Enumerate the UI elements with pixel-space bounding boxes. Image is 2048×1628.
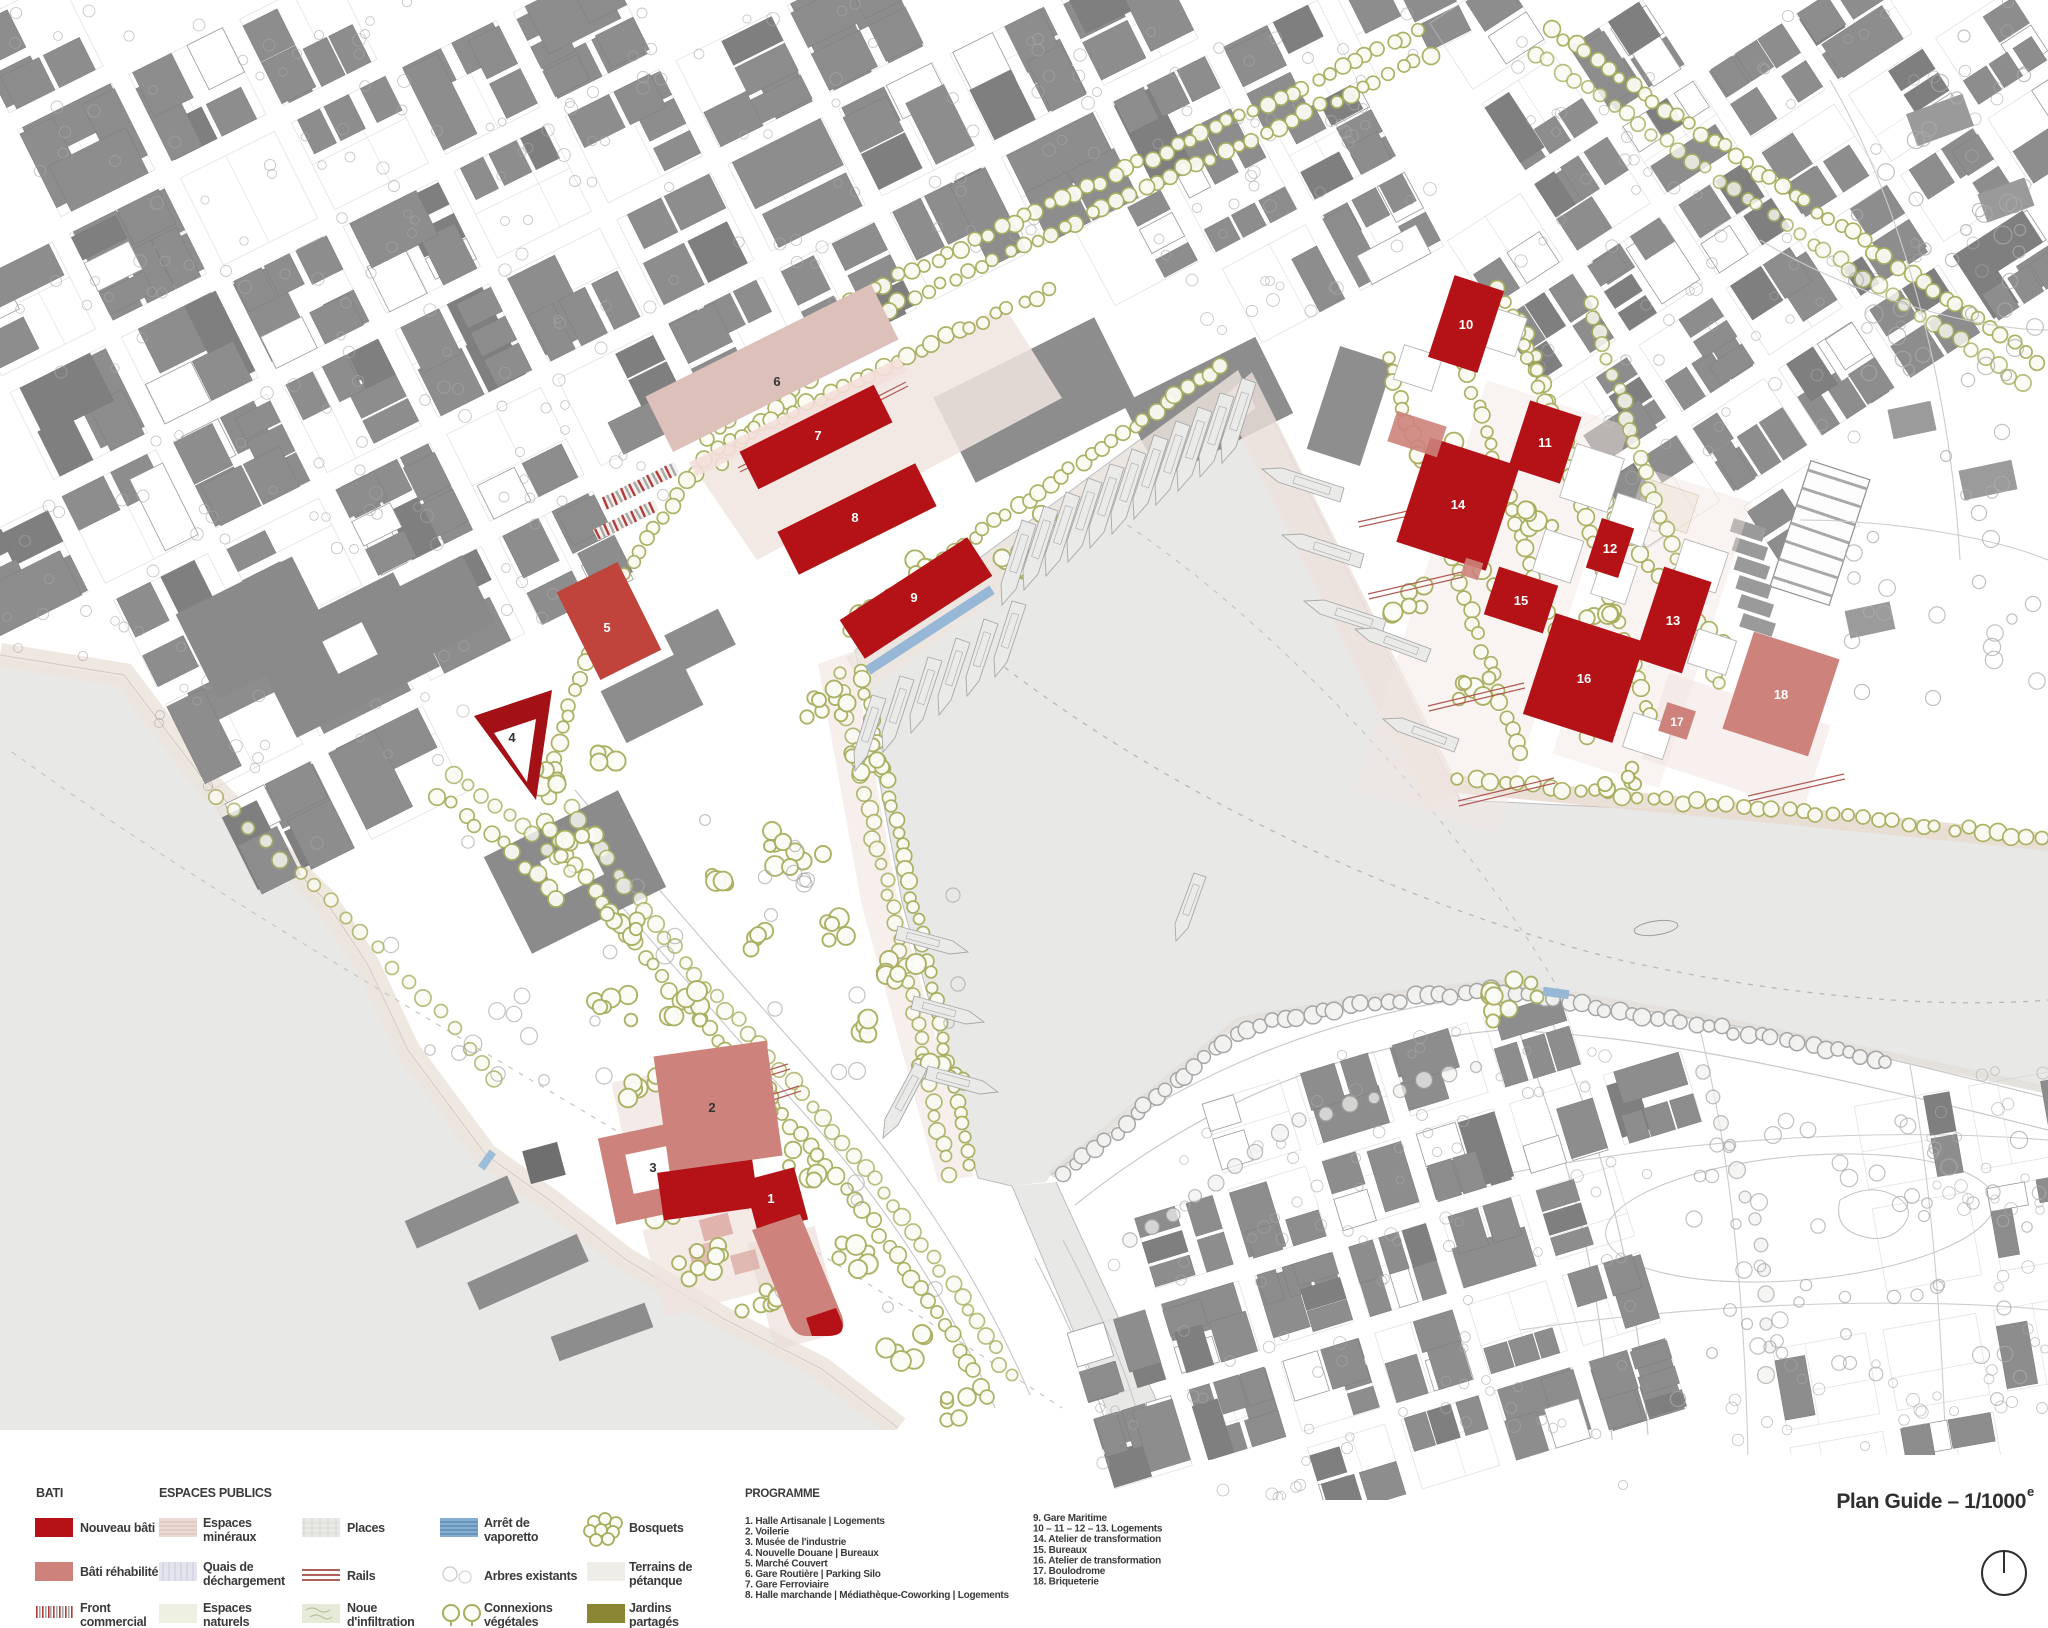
svg-text:14. Atelier de transformation: 14. Atelier de transformation bbox=[1033, 1534, 1161, 1545]
svg-text:déchargement: déchargement bbox=[203, 1574, 286, 1588]
svg-text:Rails: Rails bbox=[347, 1569, 376, 1583]
svg-text:15. Bureaux: 15. Bureaux bbox=[1033, 1545, 1088, 1556]
svg-text:18: 18 bbox=[1774, 687, 1788, 702]
svg-text:Connexions: Connexions bbox=[484, 1601, 553, 1615]
svg-text:e: e bbox=[2027, 1484, 2034, 1499]
svg-text:minéraux: minéraux bbox=[203, 1530, 257, 1544]
svg-text:10: 10 bbox=[1459, 317, 1473, 332]
svg-text:Quais de: Quais de bbox=[203, 1560, 254, 1574]
svg-text:Front: Front bbox=[80, 1601, 112, 1615]
svg-text:4: 4 bbox=[508, 730, 516, 745]
svg-text:12: 12 bbox=[1603, 541, 1617, 556]
svg-text:13: 13 bbox=[1666, 613, 1680, 628]
svg-text:Nouveau bâti: Nouveau bâti bbox=[80, 1521, 155, 1535]
svg-text:Espaces: Espaces bbox=[203, 1516, 252, 1530]
svg-text:7: 7 bbox=[814, 428, 821, 443]
svg-text:Espaces: Espaces bbox=[203, 1601, 252, 1615]
svg-text:6: 6 bbox=[773, 374, 780, 389]
svg-text:8: 8 bbox=[851, 510, 858, 525]
svg-text:17: 17 bbox=[1670, 715, 1684, 729]
svg-text:6. Gare Routière | Parking Si: 6. Gare Routière | Parking Silo bbox=[745, 1569, 881, 1580]
svg-text:Plan Guide – 1/1000: Plan Guide – 1/1000 bbox=[1836, 1490, 2026, 1513]
svg-text:15: 15 bbox=[1514, 593, 1528, 608]
svg-text:commercial: commercial bbox=[80, 1615, 146, 1628]
svg-text:BATI: BATI bbox=[36, 1486, 63, 1500]
svg-text:1. Halle Artisanale | Logement: 1. Halle Artisanale | Logements bbox=[745, 1516, 885, 1527]
svg-text:9: 9 bbox=[910, 590, 917, 605]
svg-text:3: 3 bbox=[649, 1160, 656, 1175]
svg-text:16: 16 bbox=[1577, 671, 1591, 686]
svg-text:16. Atelier de transformation: 16. Atelier de transformation bbox=[1033, 1555, 1161, 1566]
svg-text:10 – 11 – 12 – 13. Logements: 10 – 11 – 12 – 13. Logements bbox=[1033, 1524, 1163, 1535]
svg-text:partagés: partagés bbox=[629, 1615, 679, 1628]
svg-text:2: 2 bbox=[708, 1100, 715, 1115]
svg-text:pétanque: pétanque bbox=[629, 1574, 683, 1588]
svg-text:Jardins: Jardins bbox=[629, 1601, 672, 1615]
svg-text:Terrains de: Terrains de bbox=[629, 1560, 693, 1574]
svg-text:14: 14 bbox=[1451, 497, 1466, 512]
svg-text:4. Nouvelle Douane | Bureaux: 4. Nouvelle Douane | Bureaux bbox=[745, 1548, 879, 1559]
svg-text:7. Gare Ferroviaire: 7. Gare Ferroviaire bbox=[745, 1580, 829, 1591]
svg-text:5. Marché Couvert: 5. Marché Couvert bbox=[745, 1558, 828, 1569]
svg-text:5: 5 bbox=[603, 620, 610, 635]
svg-text:d'infiltration: d'infiltration bbox=[347, 1615, 415, 1628]
svg-text:8. Halle marchande | Médiathèq: 8. Halle marchande | Médiathèque-Coworki… bbox=[745, 1590, 1010, 1601]
svg-text:3. Musée de l'industrie: 3. Musée de l'industrie bbox=[745, 1537, 847, 1548]
svg-text:végétales: végétales bbox=[484, 1615, 539, 1628]
svg-text:vaporetto: vaporetto bbox=[484, 1530, 539, 1544]
svg-text:11: 11 bbox=[1538, 435, 1552, 450]
svg-text:Arrêt de: Arrêt de bbox=[484, 1516, 530, 1530]
svg-text:18. Briqueterie: 18. Briqueterie bbox=[1033, 1577, 1099, 1588]
svg-text:Bosquets: Bosquets bbox=[629, 1521, 684, 1535]
svg-text:2. Voilerie: 2. Voilerie bbox=[745, 1527, 789, 1538]
svg-text:17. Boulodrome: 17. Boulodrome bbox=[1033, 1566, 1106, 1577]
svg-text:9. Gare Maritime: 9. Gare Maritime bbox=[1033, 1513, 1108, 1524]
svg-text:1: 1 bbox=[767, 1191, 774, 1206]
svg-text:naturels: naturels bbox=[203, 1615, 250, 1628]
svg-text:ESPACES PUBLICS: ESPACES PUBLICS bbox=[159, 1486, 272, 1500]
svg-text:Bâti réhabilité: Bâti réhabilité bbox=[80, 1565, 159, 1579]
svg-text:Noue: Noue bbox=[347, 1601, 377, 1615]
svg-text:Places: Places bbox=[347, 1521, 385, 1535]
svg-text:PROGRAMME: PROGRAMME bbox=[745, 1488, 820, 1500]
svg-text:Arbres existants: Arbres existants bbox=[484, 1569, 578, 1583]
